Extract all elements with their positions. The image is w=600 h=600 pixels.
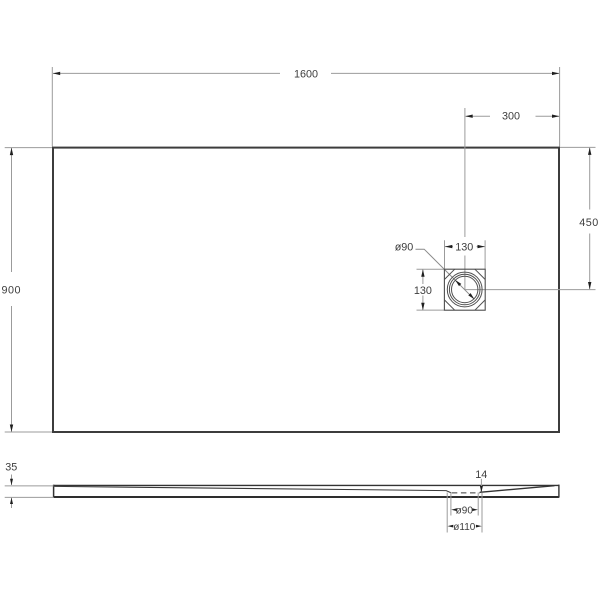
svg-text:300: 300 <box>502 111 520 123</box>
svg-text:130: 130 <box>455 241 473 253</box>
svg-text:14: 14 <box>475 469 487 481</box>
svg-text:130: 130 <box>414 285 432 297</box>
svg-text:ø90: ø90 <box>395 242 414 254</box>
svg-text:1600: 1600 <box>294 68 318 80</box>
svg-text:ø110: ø110 <box>453 522 475 533</box>
svg-text:900: 900 <box>1 285 21 297</box>
svg-text:450: 450 <box>579 217 599 229</box>
svg-text:35: 35 <box>5 462 17 474</box>
svg-text:ø90: ø90 <box>456 505 474 516</box>
